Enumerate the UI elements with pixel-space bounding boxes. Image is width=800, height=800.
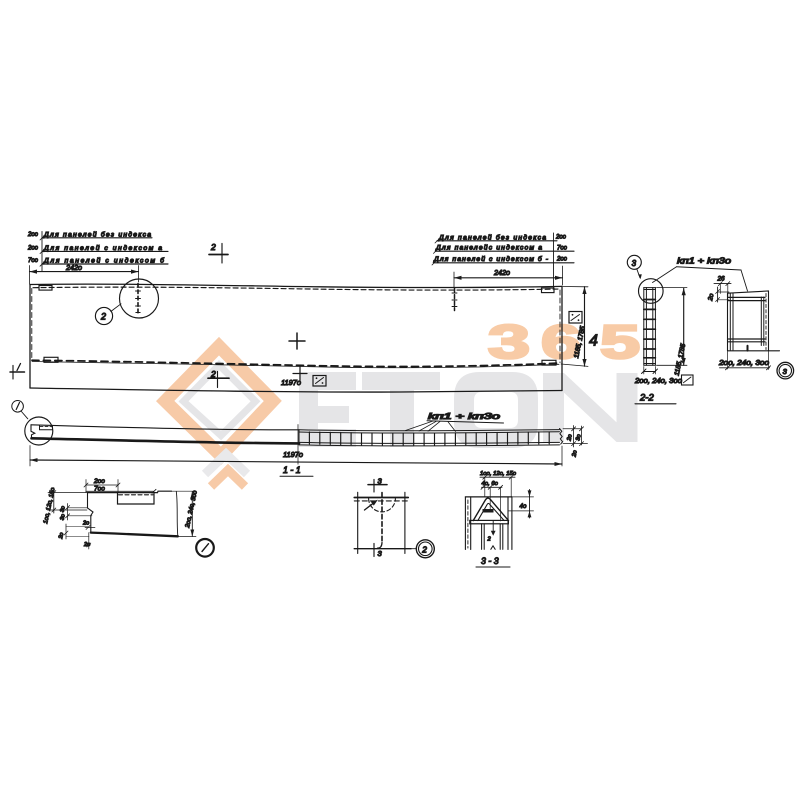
- svg-text:2-2: 2-2: [639, 393, 654, 404]
- svg-text:2o: 2o: [566, 433, 574, 442]
- svg-text:2oo: 2oo: [555, 235, 567, 241]
- svg-text:2oo, 24o, 3oo: 2oo, 24o, 3oo: [634, 378, 682, 385]
- svg-text:2oo: 2oo: [556, 256, 568, 262]
- svg-text:2o: 2o: [58, 532, 65, 540]
- svg-text:7oo: 7oo: [28, 258, 39, 264]
- svg-text:7oo: 7oo: [557, 245, 568, 251]
- svg-text:2: 2: [100, 312, 106, 322]
- svg-text:2oo: 2oo: [27, 246, 39, 252]
- svg-text:3 - 3: 3 - 3: [481, 556, 499, 566]
- svg-text:2oo: 2oo: [27, 232, 39, 238]
- svg-text:4: 4: [589, 333, 598, 350]
- svg-text:1oo, 12o, 15o: 1oo, 12o, 15o: [43, 487, 57, 525]
- svg-text:2: 2: [210, 369, 216, 379]
- svg-text:2o: 2o: [571, 449, 579, 458]
- svg-text:3o: 3o: [60, 506, 67, 513]
- svg-text:2oo, 24o, 3oo: 2oo, 24o, 3oo: [718, 360, 769, 367]
- svg-text:1 - 1: 1 - 1: [283, 465, 301, 475]
- svg-text:2: 2: [210, 242, 216, 252]
- svg-text:2oo: 2oo: [93, 478, 105, 485]
- svg-text:Для панелейс индексом а: Для панелейс индексом а: [435, 244, 542, 252]
- svg-text:2oo, 24o, 3oo: 2oo, 24o, 3oo: [184, 489, 199, 529]
- svg-text:Для панелей с индексом б -: Для панелей с индексом б -: [433, 255, 549, 263]
- svg-text:1oo, 12o, 15o: 1oo, 12o, 15o: [480, 471, 517, 477]
- svg-text:4o: 4o: [520, 503, 527, 510]
- svg-text:26: 26: [717, 276, 726, 283]
- svg-text:3: 3: [488, 315, 530, 368]
- svg-text:2o: 2o: [707, 293, 716, 303]
- svg-text:2: 2: [421, 545, 427, 555]
- svg-text:2: 2: [487, 537, 492, 543]
- svg-text:3o: 3o: [60, 514, 67, 521]
- svg-text:2o: 2o: [82, 521, 89, 527]
- svg-text:3: 3: [378, 549, 383, 558]
- svg-text:242o: 242o: [493, 268, 510, 277]
- svg-text:3: 3: [632, 259, 637, 268]
- svg-text:1197o: 1197o: [281, 378, 301, 387]
- svg-text:1197o: 1197o: [283, 450, 303, 459]
- svg-text:5: 5: [600, 315, 640, 368]
- svg-text:Для панелей без индекса: Для панелей без индекса: [43, 231, 151, 239]
- svg-text:Для панелей без индекса: Для панелей без индекса: [438, 233, 546, 241]
- svg-text:3: 3: [783, 367, 788, 376]
- svg-text:kп1 ÷ kп3o: kп1 ÷ kп3o: [677, 256, 731, 266]
- svg-text:242o: 242o: [65, 263, 82, 272]
- svg-text:Для панелей с индексом б: Для панелей с индексом б: [43, 257, 165, 265]
- svg-text:Для панелей с индексом а: Для панелей с индексом а: [43, 244, 162, 252]
- svg-text:kп1 ÷ kп3o: kп1 ÷ kп3o: [428, 412, 501, 421]
